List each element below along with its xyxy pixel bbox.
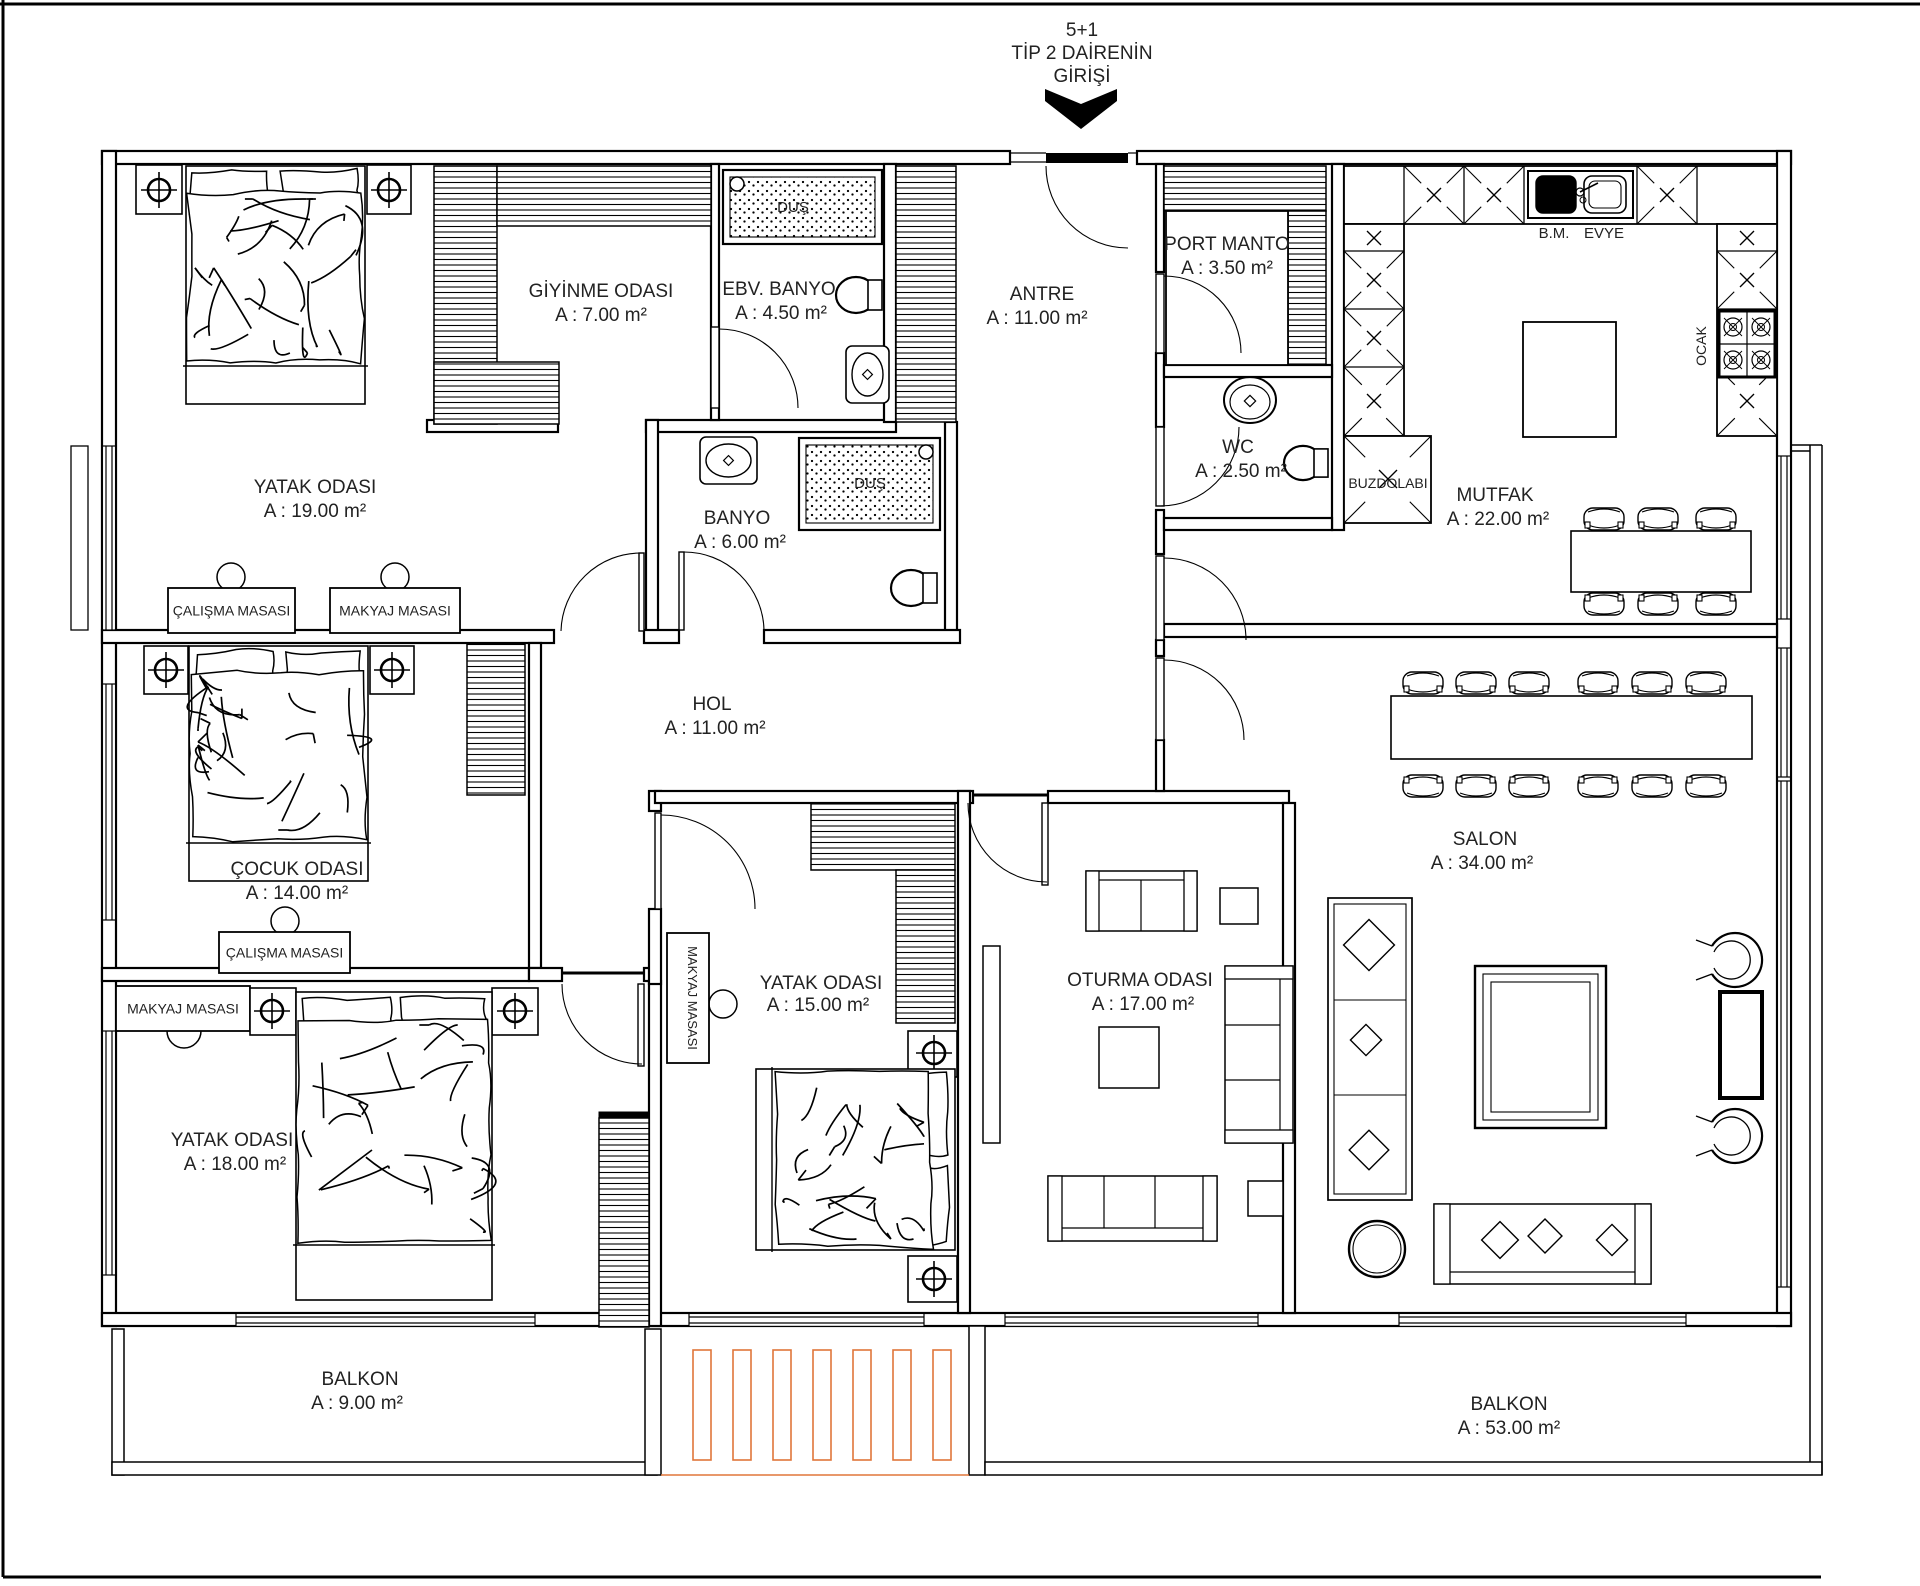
svg-text:B.M.: B.M. (1539, 225, 1570, 242)
svg-text:A : 9.00 m²: A : 9.00 m² (311, 1393, 403, 1414)
svg-text:A : 11.00 m²: A : 11.00 m² (664, 718, 765, 739)
svg-text:BALKON: BALKON (1470, 1394, 1547, 1415)
svg-text:BUZDOLABI: BUZDOLABI (1348, 475, 1427, 491)
svg-text:WC: WC (1222, 437, 1254, 458)
svg-text:A : 2.50 m²: A : 2.50 m² (1195, 461, 1287, 482)
svg-text:TİP 2 DAİRENİN: TİP 2 DAİRENİN (1011, 43, 1152, 64)
svg-text:MAKYAJ MASASI: MAKYAJ MASASI (685, 946, 700, 1050)
svg-text:MUTFAK: MUTFAK (1456, 485, 1533, 506)
svg-text:ÇOCUK ODASI: ÇOCUK ODASI (230, 859, 363, 880)
svg-text:DUŞ: DUŞ (777, 199, 809, 216)
svg-text:PORT MANTO: PORT MANTO (1164, 234, 1290, 255)
svg-text:OCAK: OCAK (1693, 326, 1709, 366)
svg-text:EBV. BANYO: EBV. BANYO (722, 279, 835, 300)
svg-text:YATAK ODASI: YATAK ODASI (254, 477, 376, 498)
svg-text:YATAK ODASI: YATAK ODASI (171, 1130, 293, 1151)
svg-text:SALON: SALON (1453, 829, 1517, 850)
svg-text:A : 7.00 m²: A : 7.00 m² (555, 305, 647, 326)
svg-text:OTURMA ODASI: OTURMA ODASI (1067, 970, 1213, 991)
svg-text:A : 34.00 m²: A : 34.00 m² (1431, 853, 1533, 874)
svg-text:BALKON: BALKON (321, 1369, 398, 1390)
svg-text:A : 19.00 m²: A : 19.00 m² (264, 501, 366, 522)
svg-text:GİYİNME ODASI: GİYİNME ODASI (529, 281, 674, 302)
svg-text:A : 6.00 m²: A : 6.00 m² (694, 532, 786, 553)
svg-text:A : 53.00 m²: A : 53.00 m² (1458, 1418, 1560, 1439)
svg-text:BANYO: BANYO (704, 508, 771, 529)
svg-text:YATAK ODASI: YATAK ODASI (760, 973, 882, 994)
svg-text:A : 22.00 m²: A : 22.00 m² (1447, 509, 1549, 530)
svg-text:A : 18.00 m²: A : 18.00 m² (184, 1154, 286, 1175)
svg-text:A : 4.50 m²: A : 4.50 m² (735, 303, 827, 324)
svg-text:ÇALIŞMA MASASI: ÇALIŞMA MASASI (226, 945, 343, 961)
svg-text:HOL: HOL (692, 694, 731, 715)
svg-text:A : 11.00 m²: A : 11.00 m² (986, 308, 1087, 329)
svg-text:MAKYAJ MASASI: MAKYAJ MASASI (339, 603, 451, 619)
svg-text:5+1: 5+1 (1066, 20, 1098, 41)
svg-text:ÇALIŞMA MASASI: ÇALIŞMA MASASI (173, 603, 290, 619)
svg-text:A : 3.50 m²: A : 3.50 m² (1181, 258, 1273, 279)
svg-text:A : 17.00 m²: A : 17.00 m² (1092, 994, 1194, 1015)
svg-text:A : 15.00 m²: A : 15.00 m² (767, 995, 869, 1016)
svg-text:EVYE: EVYE (1584, 225, 1624, 242)
svg-text:GİRİŞİ: GİRİŞİ (1053, 66, 1110, 87)
svg-text:A : 14.00 m²: A : 14.00 m² (246, 883, 348, 904)
svg-text:MAKYAJ MASASI: MAKYAJ MASASI (127, 1001, 239, 1017)
svg-text:DUŞ: DUŞ (854, 475, 886, 492)
svg-text:ANTRE: ANTRE (1010, 284, 1074, 305)
